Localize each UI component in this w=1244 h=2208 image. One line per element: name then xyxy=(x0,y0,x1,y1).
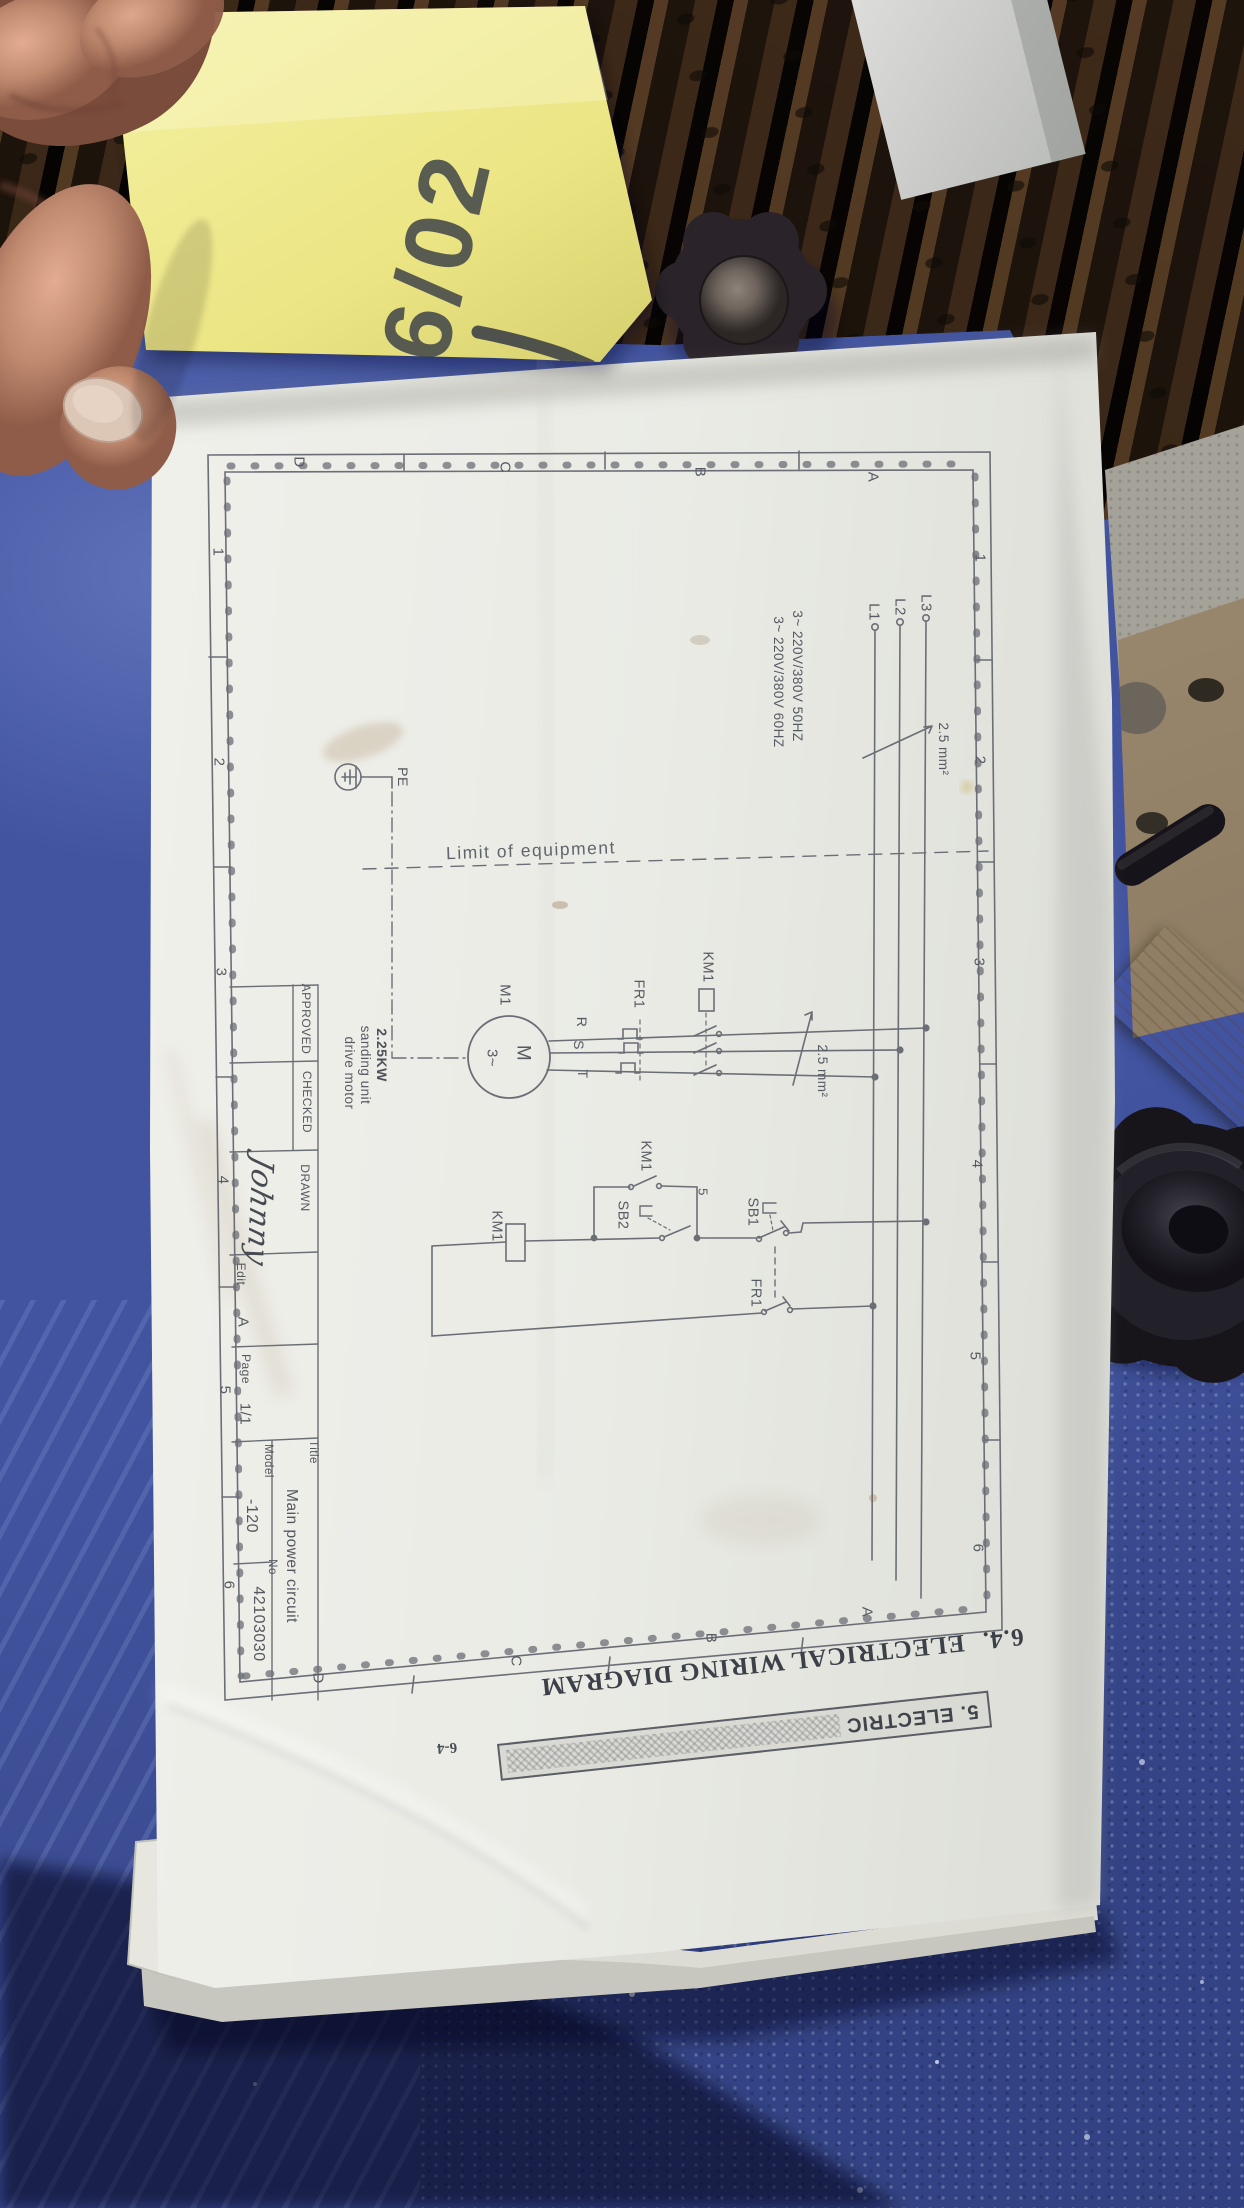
photo-scene: 6/02 1 2 3 4 5 6 1 2 3 4 5 6 D C B A D C… xyxy=(0,0,1244,2208)
hand xyxy=(0,0,242,503)
hand-layer xyxy=(0,0,1244,2208)
